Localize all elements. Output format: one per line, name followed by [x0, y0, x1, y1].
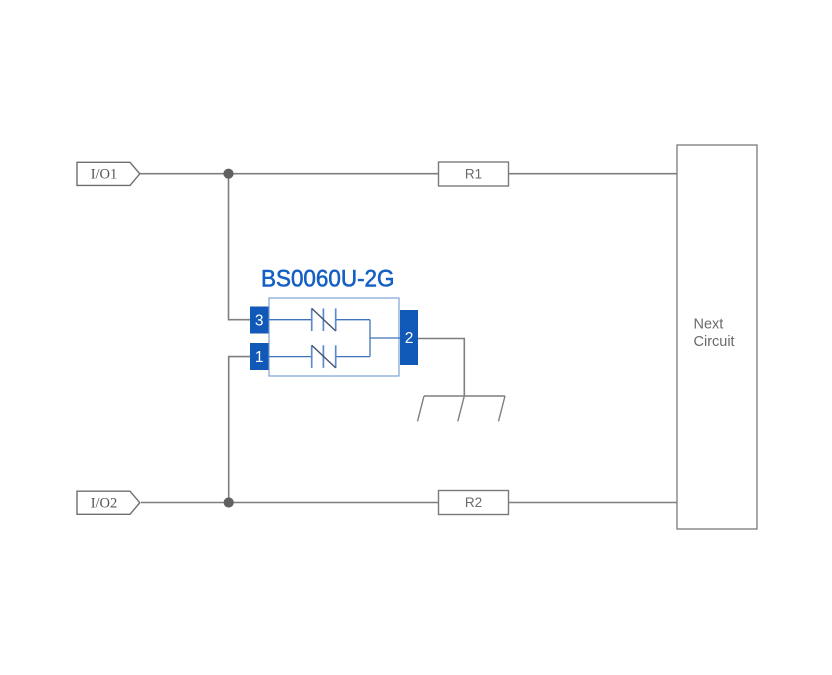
svg-text:1: 1: [255, 349, 264, 366]
svg-text:Circuit: Circuit: [694, 334, 735, 350]
svg-text:R2: R2: [465, 495, 482, 510]
svg-text:3: 3: [255, 313, 264, 330]
svg-text:R1: R1: [465, 167, 482, 182]
svg-text:Next: Next: [694, 316, 724, 332]
svg-text:I/O1: I/O1: [91, 167, 118, 183]
svg-text:I/O2: I/O2: [91, 496, 118, 512]
svg-text:BS0060U-2G: BS0060U-2G: [261, 265, 395, 292]
svg-text:2: 2: [405, 330, 414, 347]
